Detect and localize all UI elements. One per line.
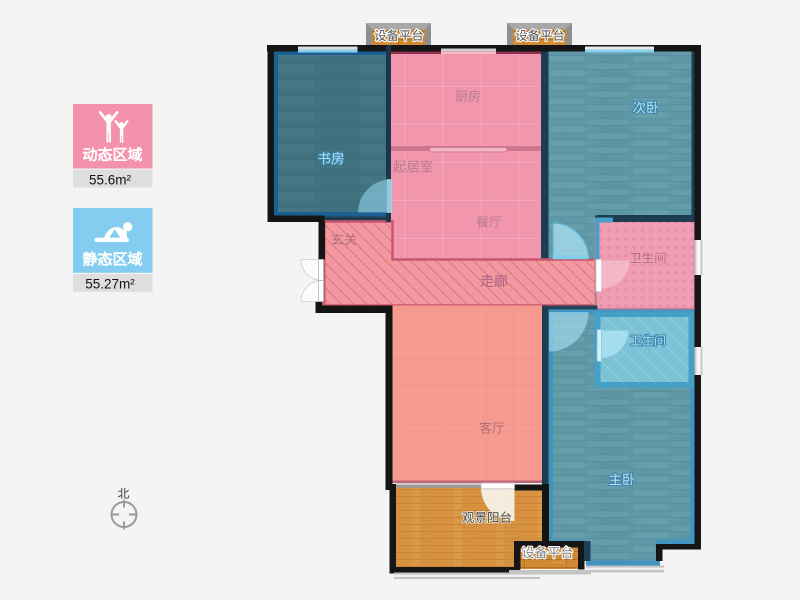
svg-text:55.27m²: 55.27m²	[85, 277, 135, 292]
svg-text:55.6m²: 55.6m²	[89, 173, 132, 188]
